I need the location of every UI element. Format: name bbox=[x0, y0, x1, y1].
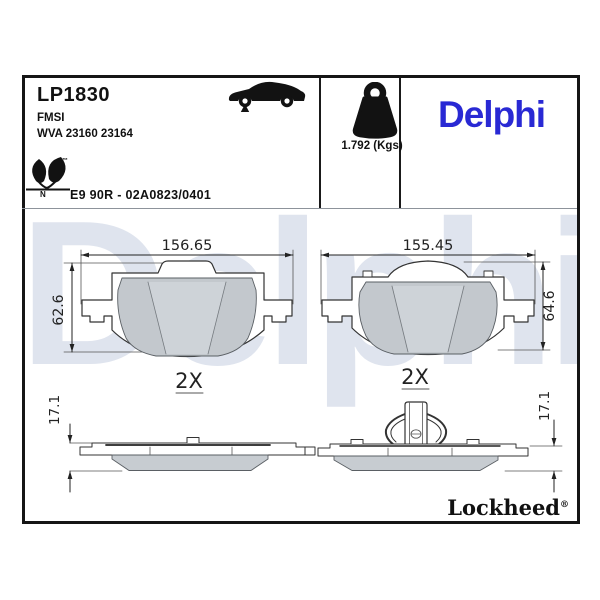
technical-drawing: 156.65 62.6 155.45 bbox=[0, 0, 600, 600]
quantity-right: 2X bbox=[401, 365, 429, 389]
quantity-left: 2X bbox=[175, 369, 203, 393]
dim-height-left: 62.6 bbox=[51, 294, 67, 325]
front-view-right: 155.45 64.6 bbox=[321, 238, 558, 355]
dim-thickness-left: 17.1 bbox=[47, 395, 63, 425]
spring-clip-icon bbox=[386, 402, 446, 446]
dim-thickness-right: 17.1 bbox=[537, 391, 553, 421]
dim-width-right: 155.45 bbox=[403, 238, 454, 254]
datasheet-page: Delphi LP1830 FMSI WVA 23160 23164 1.792… bbox=[0, 0, 600, 600]
side-view-left: 2X 17.1 bbox=[47, 369, 315, 492]
front-view-left: 156.65 62.6 bbox=[51, 238, 293, 357]
dim-width-left: 156.65 bbox=[162, 238, 213, 254]
side-view-right: 2X 17.1 bbox=[318, 365, 562, 492]
dim-height-right: 64.6 bbox=[542, 290, 558, 321]
